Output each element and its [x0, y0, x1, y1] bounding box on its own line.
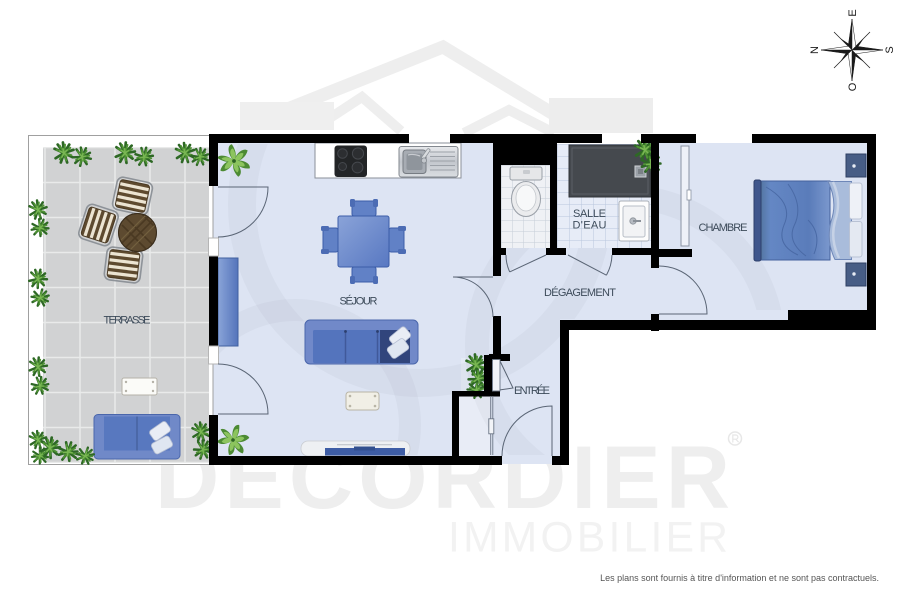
svg-text:SÉJOUR: SÉJOUR [340, 295, 378, 308]
svg-text:D'EAU: D'EAU [573, 220, 607, 232]
svg-text:SALLE: SALLE [573, 208, 606, 220]
svg-text:N: N [809, 46, 821, 54]
svg-text:TERRASSE: TERRASSE [104, 315, 151, 327]
svg-text:CHAMBRE: CHAMBRE [699, 222, 748, 234]
svg-text:IMMOBILIER: IMMOBILIER [448, 515, 731, 562]
svg-text:S: S [884, 46, 896, 53]
svg-text:E: E [847, 9, 859, 16]
svg-text:Les plans sont fournis à titre: Les plans sont fournis à titre d'informa… [600, 573, 879, 583]
svg-text:O: O [847, 82, 859, 91]
svg-text:ENTRÉE: ENTRÉE [514, 384, 550, 397]
svg-text:DÉGAGEMENT: DÉGAGEMENT [544, 286, 616, 299]
